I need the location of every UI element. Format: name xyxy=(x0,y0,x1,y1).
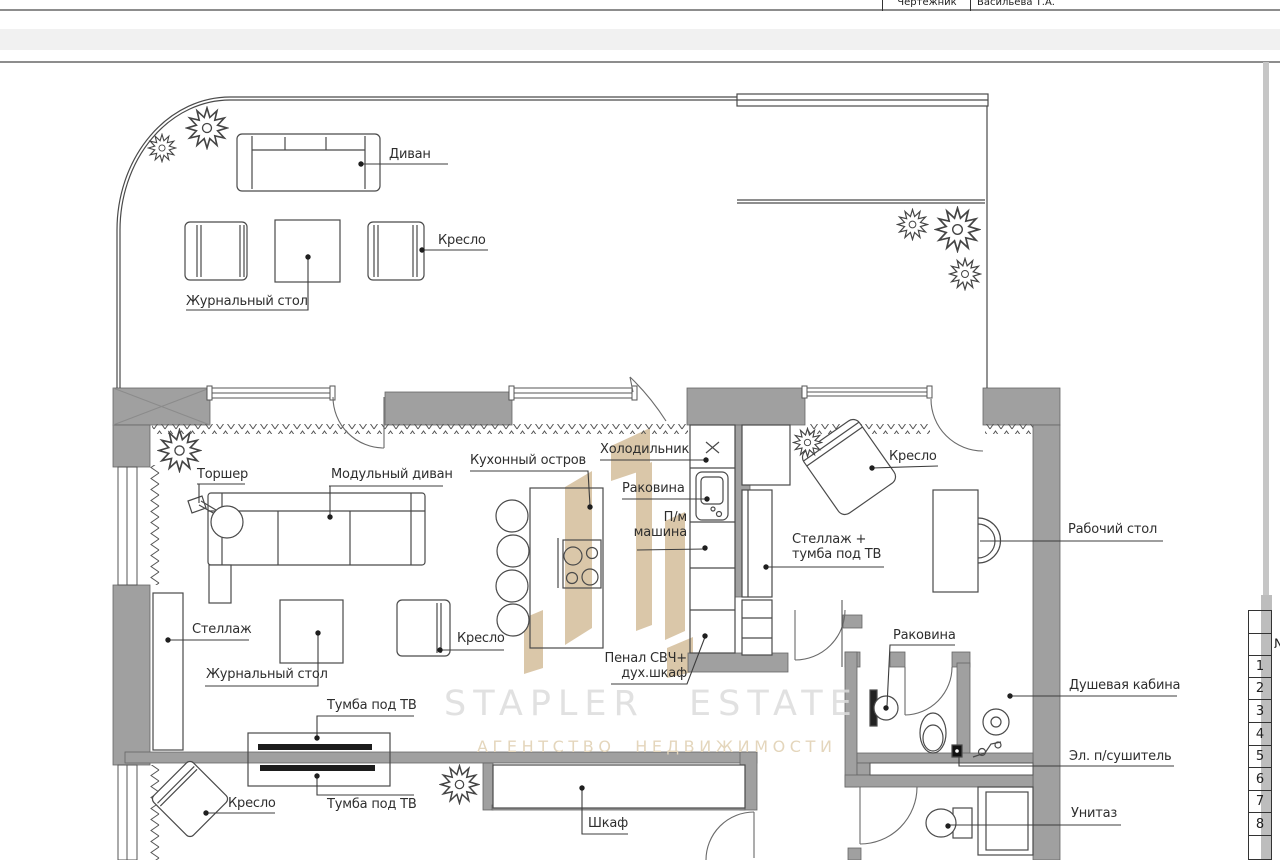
wall-top-mid xyxy=(385,392,512,425)
label-kreslo-terrace: Кресло xyxy=(438,233,486,248)
label-holodilnik: Холодильник xyxy=(600,442,689,457)
label-divan: Диван xyxy=(389,147,431,162)
door-bathroom xyxy=(905,667,952,715)
label-kreslo-office: Кресло xyxy=(889,449,937,464)
label-stellazh: Стеллаж xyxy=(192,622,252,637)
label-unitaz: Унитаз xyxy=(1071,806,1117,821)
wall-hall-stub xyxy=(843,615,862,628)
door-wc xyxy=(860,787,917,844)
shelving-living xyxy=(153,593,183,750)
wall-bath-band-upper xyxy=(857,753,1033,763)
label-el-sushitel: Эл. п/сушитель xyxy=(1069,749,1171,764)
armchair-living xyxy=(397,600,450,656)
legend-row: 1 xyxy=(1248,655,1272,678)
label-penal: Пенал СВЧ+дух.шкаф xyxy=(595,651,687,681)
hall-closet xyxy=(742,425,790,485)
label-rabochy-stol: Рабочий стол xyxy=(1068,522,1157,537)
label-kuhonny-ostrov: Кухонный остров xyxy=(470,453,586,468)
legend-wall-band-thin xyxy=(1263,62,1269,595)
label-zhurnalny-living: Журнальный стол xyxy=(206,667,328,682)
wall-bath-band-joint xyxy=(857,763,870,775)
bath-niche xyxy=(870,763,1033,775)
plant-icon xyxy=(441,766,478,803)
label-rakovina-bathroom: Раковина xyxy=(893,628,956,643)
legend-row: 4 xyxy=(1248,722,1272,746)
shelving-tv-unit xyxy=(742,490,772,597)
legend-row: 8 xyxy=(1248,812,1272,836)
label-modulny-divan: Модульный диван xyxy=(331,467,453,482)
watermark-brand: STAPLER ESTATE xyxy=(444,684,859,724)
legend-row: 7 xyxy=(1248,790,1272,813)
wall-top-kitchen xyxy=(687,388,805,425)
wall-kitchen-bottom xyxy=(688,653,788,672)
plant-icon xyxy=(950,259,981,290)
wall-bath-top-b xyxy=(890,652,905,667)
watermark-tagline: АГЕНТСТВО НЕДВИЖИМОСТИ xyxy=(477,737,837,756)
label-stellazh-tumba: Стеллаж +тумба под ТВ xyxy=(792,532,881,562)
door-office-balcony xyxy=(931,399,983,451)
wall-wardrobe-left xyxy=(483,763,493,810)
modular-sofa xyxy=(208,493,425,603)
armchair-balcony-lower xyxy=(150,759,229,838)
bar-stools xyxy=(496,500,529,636)
legend-row: 3 xyxy=(1248,699,1272,723)
label-pm-mashina: П/ммашина xyxy=(600,510,687,540)
wall-right xyxy=(1033,425,1060,860)
wall-left-mid xyxy=(113,585,150,765)
shower-head xyxy=(983,709,1009,735)
toilet-wc xyxy=(926,809,956,837)
wardrobe xyxy=(493,765,745,808)
label-dushevaya: Душевая кабина xyxy=(1069,678,1180,693)
door-terrace-lower xyxy=(706,812,754,860)
label-kreslo-balcony: Кресло xyxy=(228,796,276,811)
label-torsher: Торшер xyxy=(197,467,248,482)
wall-left-upper xyxy=(113,425,150,467)
wall-wc-corner xyxy=(848,848,861,860)
legend-cell-empty xyxy=(1248,610,1272,634)
legend-header-number: № xyxy=(1274,637,1280,652)
armchair-terrace-left xyxy=(185,222,247,280)
label-rakovina-kitchen: Раковина xyxy=(622,481,685,496)
legend-row: 2 xyxy=(1248,677,1272,700)
floor-plan-canvas xyxy=(0,0,1280,860)
floor-plan-screenshot: { "title_block": { "role": "Чертежник", … xyxy=(0,0,1280,860)
hall-closets xyxy=(742,425,790,655)
tv-upper xyxy=(258,744,372,750)
label-shkaf: Шкаф xyxy=(588,816,628,831)
kitchen-island xyxy=(530,488,603,648)
wall-bath-band-lower xyxy=(845,775,1033,787)
armchair-terrace-right xyxy=(368,222,424,280)
label-kreslo-living: Кресло xyxy=(457,631,505,646)
plant-icon xyxy=(936,208,979,251)
door-balcony-living xyxy=(333,397,384,448)
wall-corner-top-right xyxy=(983,388,1060,425)
legend-row: 6 xyxy=(1248,767,1272,791)
label-zhurnalny-terrace: Журнальный стол xyxy=(186,294,308,309)
plant-icon xyxy=(159,430,200,471)
coffee-table-living xyxy=(280,600,343,663)
label-tumba-tv-lower: Тумба под ТВ xyxy=(327,797,417,812)
legend-cell-tail xyxy=(1248,835,1272,860)
plant-icon xyxy=(187,108,227,148)
tv-lower xyxy=(260,765,375,771)
sofa-terrace xyxy=(237,134,380,191)
kitchen-cabinet-run xyxy=(690,425,735,653)
legend-cell-header xyxy=(1248,633,1272,656)
plant-icon xyxy=(898,210,928,240)
door-office xyxy=(795,610,845,660)
legend-row: 5 xyxy=(1248,745,1272,768)
label-tumba-tv-upper: Тумба под ТВ xyxy=(327,698,417,713)
